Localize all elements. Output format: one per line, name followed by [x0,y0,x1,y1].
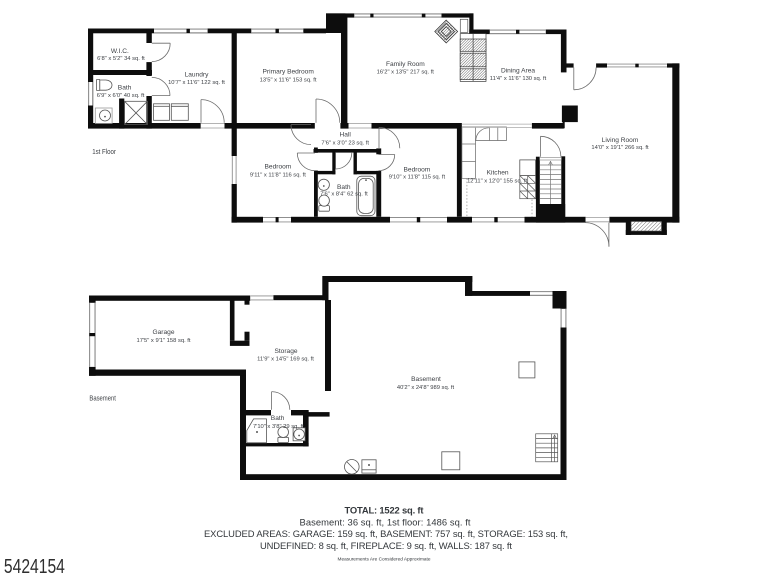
svg-text:Basement: 36 sq. ft, 1st floor: Basement: 36 sq. ft, 1st floor: 1486 sq.… [300,516,471,527]
svg-text:11'9" x 14'5" 169 sq. ft: 11'9" x 14'5" 169 sq. ft [257,357,314,363]
svg-text:9'10" x 11'8" 115 sq. ft: 9'10" x 11'8" 115 sq. ft [389,175,446,181]
svg-text:TOTAL: 1522 sq. ft: TOTAL: 1522 sq. ft [345,505,424,516]
svg-text:W.I.C.: W.I.C. [111,48,129,55]
svg-text:Garage: Garage [153,329,175,336]
svg-text:6'9" x 6'0" 40 sq. ft: 6'9" x 6'0" 40 sq. ft [97,93,145,99]
svg-text:11'4" x 11'6" 130 sq. ft: 11'4" x 11'6" 130 sq. ft [490,76,547,82]
svg-text:Primary Bedroom: Primary Bedroom [263,69,315,76]
svg-text:13'5" x 11'6" 153 sq. ft: 13'5" x 11'6" 153 sq. ft [260,77,317,83]
svg-text:9'11" x 11'8" 116 sq. ft: 9'11" x 11'8" 116 sq. ft [250,172,306,178]
svg-text:Family Room: Family Room [386,61,425,68]
svg-text:Bedroom: Bedroom [404,166,431,173]
svg-text:Bath: Bath [337,184,351,191]
svg-text:Basement: Basement [411,376,441,383]
svg-text:Laundry: Laundry [185,72,210,79]
svg-text:16'2" x 13'5" 217 sq. ft: 16'2" x 13'5" 217 sq. ft [377,70,435,76]
svg-text:12'11" x 12'0" 155 sq. ft: 12'11" x 12'0" 155 sq. ft [467,178,527,184]
svg-text:Kitchen: Kitchen [487,169,509,176]
svg-text:1st Floor: 1st Floor [92,147,116,156]
svg-text:Basement: Basement [89,394,116,403]
svg-text:Bath: Bath [118,85,132,92]
svg-text:Bedroom: Bedroom [265,164,292,171]
svg-text:Hall: Hall [340,131,352,138]
svg-text:5424154: 5424154 [4,556,65,576]
svg-text:10'7" x 11'6" 122 sq. ft: 10'7" x 11'6" 122 sq. ft [168,80,225,86]
svg-text:7'6" x 3'0" 23 sq. ft: 7'6" x 3'0" 23 sq. ft [321,140,369,146]
svg-text:14'0" x 19'1" 266 sq. ft: 14'0" x 19'1" 266 sq. ft [591,145,649,151]
svg-text:Bath: Bath [271,415,285,422]
svg-text:40'2" x 24'8" 989 sq. ft: 40'2" x 24'8" 989 sq. ft [397,385,455,391]
svg-text:Storage: Storage [274,348,297,355]
svg-text:Dining Area: Dining Area [501,68,535,75]
svg-text:7'10" x 3'8" 29 sq. ft: 7'10" x 3'8" 29 sq. ft [253,424,304,430]
svg-text:Living Room: Living Room [602,137,639,144]
svg-text:UNDEFINED: 8 sq. ft, FIREPLACE: UNDEFINED: 8 sq. ft, FIREPLACE: 9 sq. ft… [260,540,512,551]
svg-text:EXCLUDED AREAS: GARAGE: 159 sq: EXCLUDED AREAS: GARAGE: 159 sq. ft, BASE… [204,528,568,539]
svg-text:Measurements Are Considered Ap: Measurements Are Considered Approximate [338,557,431,563]
svg-text:17'5" x 9'1" 158 sq. ft: 17'5" x 9'1" 158 sq. ft [136,338,190,344]
svg-text:6'8" x 5'2" 34 sq. ft: 6'8" x 5'2" 34 sq. ft [97,56,145,62]
svg-text:7'6" x 8'4" 62 sq. ft: 7'6" x 8'4" 62 sq. ft [320,192,368,198]
